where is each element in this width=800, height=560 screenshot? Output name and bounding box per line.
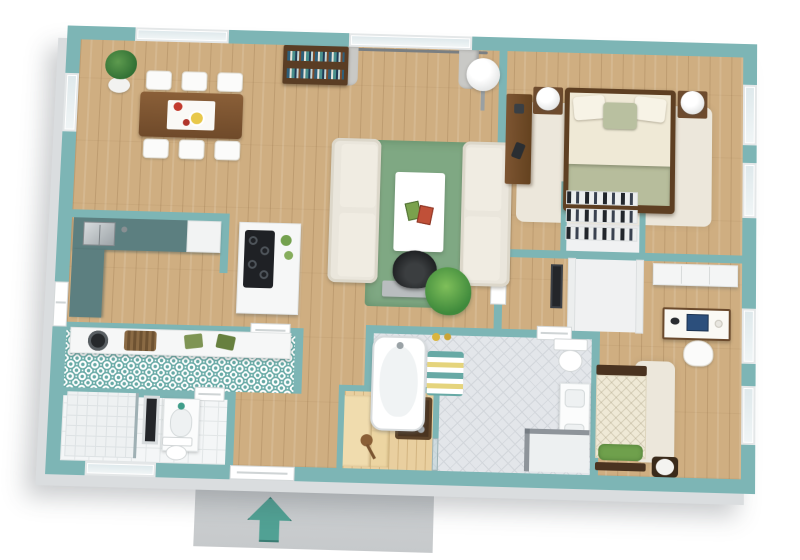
shower-glass-side <box>524 428 530 471</box>
single-bed <box>595 365 647 474</box>
picture-frame <box>550 264 563 308</box>
dining-side-window <box>62 73 79 132</box>
green-towel <box>184 333 203 349</box>
sofa-cushion <box>465 147 502 211</box>
toilet-small-bath <box>161 437 192 462</box>
house-outline <box>45 25 757 494</box>
dining-chair <box>143 138 170 158</box>
desk-decor <box>514 104 524 114</box>
pillow <box>633 96 667 123</box>
dining-chair <box>214 140 241 160</box>
kitchen-island <box>236 222 301 315</box>
bedroom2-window-2 <box>741 386 755 445</box>
master-window-1 <box>743 85 757 146</box>
burner <box>260 246 269 255</box>
desk-item <box>670 317 679 324</box>
dining-window <box>135 27 229 43</box>
kitchen-sink <box>83 221 116 246</box>
closet-left-wall <box>568 259 575 331</box>
sauna-ladle <box>360 434 383 461</box>
sofa-left <box>327 138 381 284</box>
magazine <box>417 205 434 225</box>
table-lamp-right <box>681 91 705 115</box>
green-towel <box>215 333 236 350</box>
floor-plan-stage <box>0 0 800 560</box>
wicker-basket <box>124 330 157 351</box>
dining-chair <box>181 71 207 91</box>
shower-area <box>64 391 138 458</box>
entrance-pad <box>193 474 434 553</box>
footboard <box>595 462 646 472</box>
front-door <box>229 465 294 481</box>
books-row <box>287 68 345 79</box>
shower-glass-top <box>525 428 590 435</box>
master-window-2 <box>742 163 756 219</box>
green-pot <box>284 251 293 260</box>
books-row <box>287 51 345 62</box>
shoe-shelf <box>567 191 637 205</box>
dining-plant <box>104 50 138 94</box>
bedroom2-window-1 <box>742 308 756 364</box>
desk-decor <box>511 142 526 160</box>
shoe-shelf <box>566 227 636 241</box>
washing-machine-door <box>88 330 109 351</box>
burner <box>248 260 257 269</box>
floor-plan-scene <box>25 15 761 560</box>
wardrobe-divider <box>709 267 710 285</box>
round-stool <box>652 456 679 477</box>
computer <box>686 314 708 332</box>
desk-item <box>715 320 723 328</box>
bath-mat <box>426 351 463 396</box>
sofa-cushion <box>337 213 375 277</box>
vanity-sink <box>565 389 585 408</box>
bathtub <box>370 335 427 431</box>
burner <box>249 236 258 245</box>
green-kettle <box>280 235 291 246</box>
vanity-sink <box>169 408 192 437</box>
dining-chair <box>178 139 205 159</box>
sofa-cushion <box>340 144 378 208</box>
small-bath-window <box>85 461 157 477</box>
plant-foliage <box>105 50 138 80</box>
office-chair <box>683 340 713 367</box>
main-shower <box>524 428 590 473</box>
faucet <box>121 226 127 232</box>
bookshelf <box>282 45 348 86</box>
coffee-table <box>393 172 445 252</box>
accent-pillow <box>603 102 637 129</box>
sofa-cushion <box>464 216 501 281</box>
sauna-glass-door <box>432 438 439 471</box>
burner <box>259 270 268 279</box>
green-pillow <box>598 444 643 462</box>
dining-chair <box>146 70 173 90</box>
ladle-handle <box>366 444 376 460</box>
wardrobe-divider <box>681 266 682 284</box>
plant-pot <box>108 77 130 93</box>
laundry-exterior-door <box>53 281 69 326</box>
toilet-main-bath <box>553 338 588 379</box>
shoe-shelf <box>567 209 637 223</box>
toilet-bowl <box>165 445 187 461</box>
cooktop <box>243 230 275 288</box>
sink-divider <box>99 225 101 245</box>
kitchen-cabinet-white <box>186 220 221 253</box>
dining-chair <box>217 72 243 92</box>
stool-top <box>656 459 674 476</box>
pillow <box>573 95 607 121</box>
toilet-bowl <box>558 349 583 372</box>
kitchen-counter-side <box>69 249 104 318</box>
master-desk <box>505 94 533 185</box>
entrance-arrow-icon <box>246 496 292 543</box>
wardrobe <box>653 263 738 287</box>
closet-right-wall <box>636 261 643 333</box>
floor-walk-in-closet <box>572 259 641 333</box>
dining-table <box>139 91 244 139</box>
bathroom-mirror <box>142 395 160 444</box>
tub-basin <box>378 345 418 417</box>
office-desk <box>662 307 731 341</box>
